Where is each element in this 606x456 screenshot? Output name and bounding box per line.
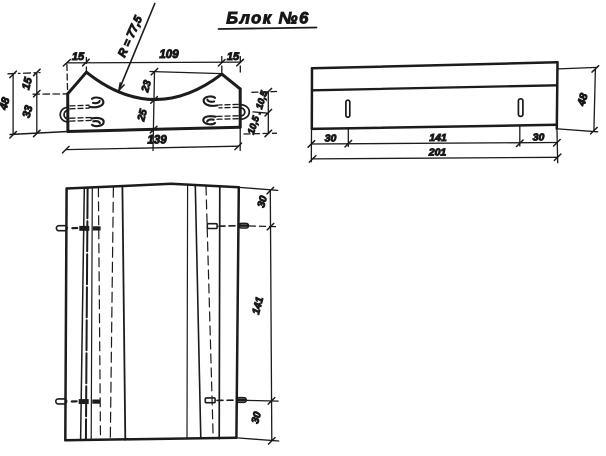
svg-text:139: 139 bbox=[147, 135, 167, 147]
svg-text:15: 15 bbox=[72, 51, 85, 63]
svg-text:48: 48 bbox=[0, 95, 13, 112]
svg-text:48: 48 bbox=[575, 91, 591, 108]
svg-text:15: 15 bbox=[227, 51, 240, 63]
svg-text:Блок №6: Блок №6 bbox=[226, 10, 310, 28]
svg-text:30: 30 bbox=[325, 133, 337, 145]
svg-text:23: 23 bbox=[139, 79, 154, 95]
svg-text:141: 141 bbox=[429, 132, 447, 144]
svg-text:30: 30 bbox=[249, 410, 264, 425]
svg-text:201: 201 bbox=[428, 147, 447, 159]
svg-text:33: 33 bbox=[21, 104, 36, 119]
svg-text:141: 141 bbox=[250, 296, 266, 316]
svg-text:109: 109 bbox=[159, 49, 179, 61]
svg-text:30: 30 bbox=[533, 132, 545, 144]
svg-text:30: 30 bbox=[255, 194, 270, 209]
svg-text:25: 25 bbox=[135, 108, 150, 124]
svg-text:15: 15 bbox=[20, 75, 35, 91]
